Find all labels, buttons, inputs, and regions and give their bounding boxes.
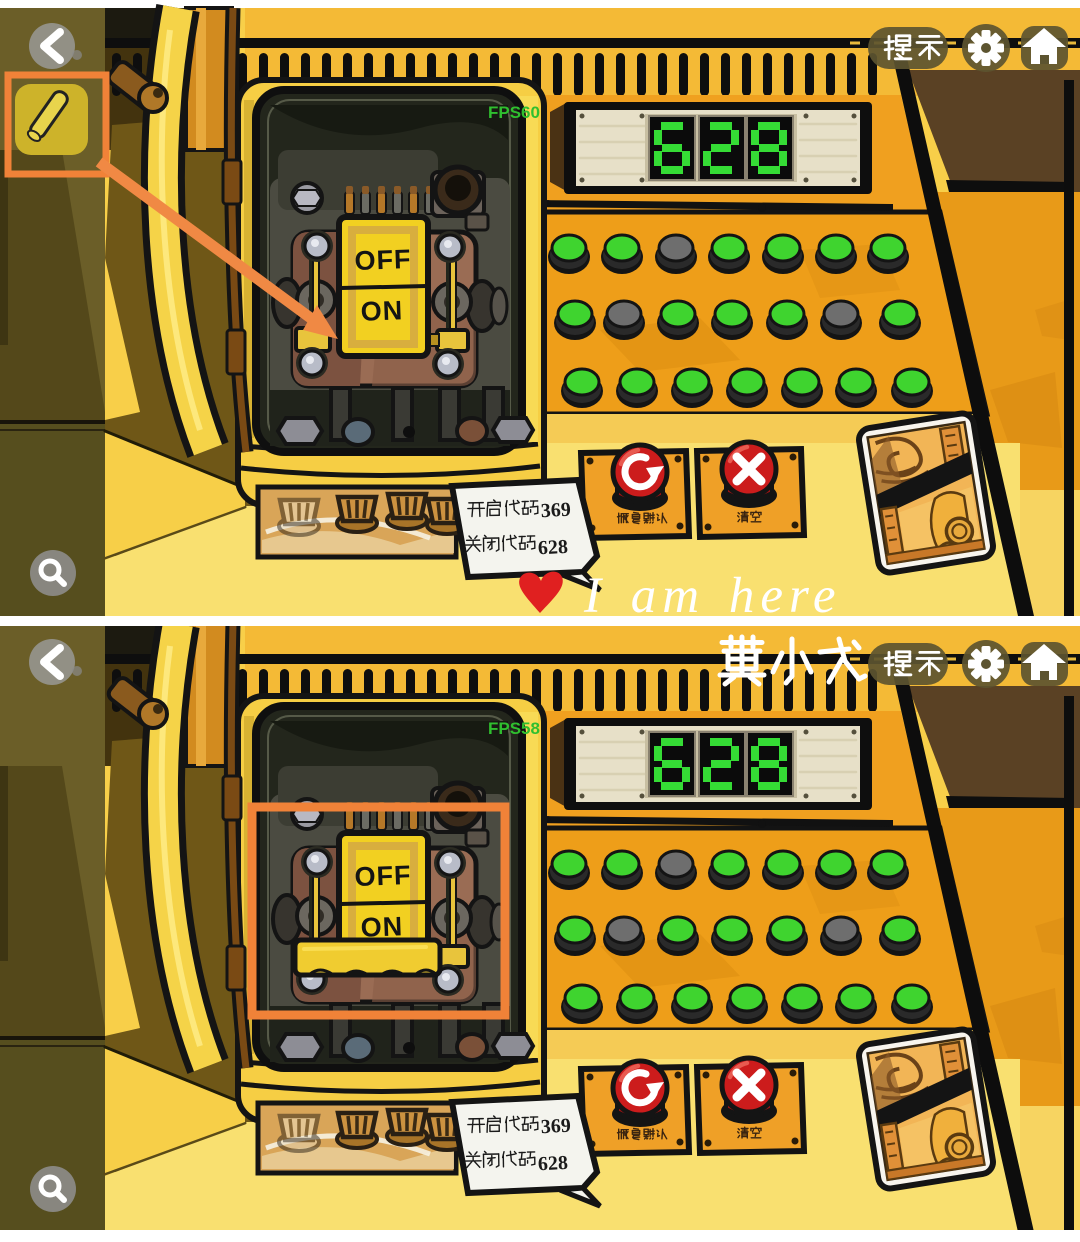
svg-text:FPS60: FPS60 (488, 103, 540, 122)
svg-text:I am here: I am here (583, 568, 842, 624)
svg-text:FPS58: FPS58 (488, 719, 540, 738)
